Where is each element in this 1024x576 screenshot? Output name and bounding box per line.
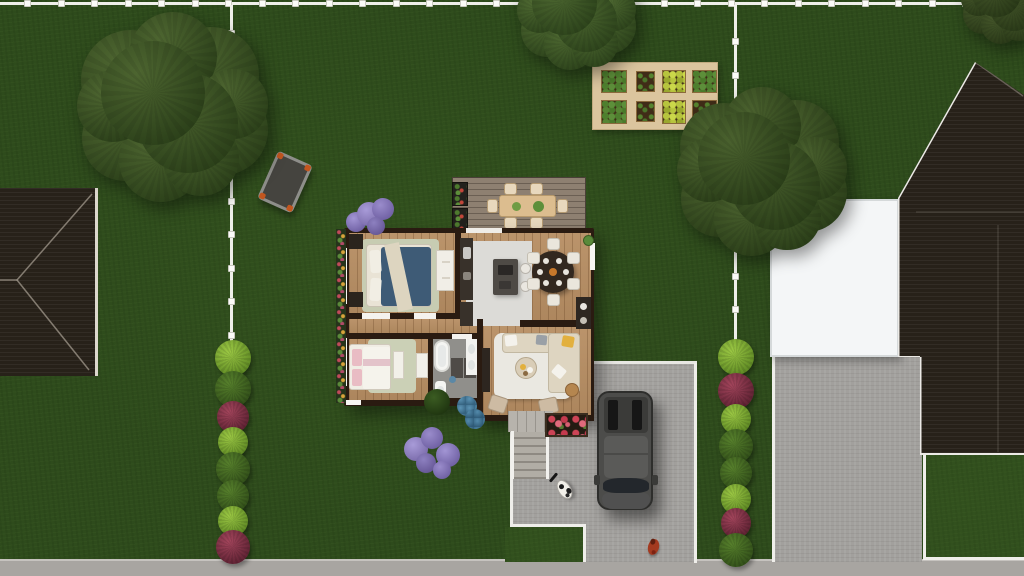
left-neighbor-roof[interactable] [0,188,98,376]
patio-chair[interactable] [504,183,517,195]
raised-bed[interactable] [636,71,655,92]
trampoline-corner [304,164,312,172]
scene-top-down-floor-plan [0,0,1024,576]
fence-post [694,0,701,7]
fence-post [732,306,739,313]
fence-post [732,273,739,280]
bath-mat[interactable] [451,358,463,378]
chicken-head [651,550,656,555]
fence-post [158,0,165,7]
neighbor-lawn-left-edge [923,455,926,559]
fence-post [493,0,500,7]
duvet [363,347,390,389]
lamp [580,317,587,324]
kitchen-sink [463,247,471,259]
fence-post [24,0,31,7]
vase [580,303,587,310]
fence-post [259,0,266,7]
living-shelf[interactable] [482,348,490,392]
deck-planter-top[interactable] [452,182,468,206]
hedge-bush[interactable] [718,339,754,375]
side-table[interactable] [565,383,579,397]
fern-plant[interactable] [424,389,450,415]
fence-post [228,231,235,238]
dresser-handle [442,261,450,263]
central-driveway-top-edge [592,361,697,364]
counter-item [463,272,471,280]
fence-post [828,0,835,7]
dining-chair[interactable] [527,278,540,290]
boundary-fence-top-rail [0,2,1024,5]
fence-post [661,0,668,7]
fence-post [326,0,333,7]
duvet-stripe [363,359,390,366]
truck-bed-rail [608,400,618,430]
door-master [362,313,390,319]
table-plant [533,201,544,212]
notch-edge-horizontal [510,524,586,527]
kitchen-tall-unit[interactable] [460,302,473,326]
entry-stairs[interactable] [514,432,548,479]
patio-table[interactable] [499,195,556,217]
side-mirror [652,475,658,485]
bed-bench[interactable] [393,351,404,379]
table-plant [512,202,521,211]
right-driveway-left-edge [772,357,775,562]
cab-roof [604,436,648,478]
hydrangea-blue[interactable] [465,409,485,429]
hedge-bush[interactable] [719,533,753,567]
patio-chair[interactable] [557,199,568,213]
bathtub[interactable] [434,340,450,372]
place-setting [543,258,549,264]
dining-chair[interactable] [527,252,540,264]
truck-bed-rail [632,400,642,430]
raised-bed[interactable] [601,100,627,124]
fence-post [929,0,936,7]
patio-chair[interactable] [530,183,543,195]
tree-foliage-lobe [698,112,791,205]
fence-post [895,0,902,7]
entry-flowerbed[interactable] [545,413,588,437]
tree-foliage-lobe [101,41,205,145]
stair-rail [546,431,549,479]
kitchen-island[interactable] [493,259,518,295]
place-setting [556,258,562,264]
fence-post [460,0,467,7]
trampoline-corner [276,152,284,160]
roof-seam [604,453,648,455]
windshield [603,478,649,493]
fence-post [393,0,400,7]
fence-post [192,0,199,7]
nightstand[interactable] [349,234,363,249]
patio-chair[interactable] [487,199,498,213]
driveway-grass-notch [505,527,584,562]
bath-vanity[interactable] [466,339,477,375]
window-bed2-bottom [346,400,361,405]
bar-stool[interactable] [520,263,531,274]
table-decor [523,371,528,376]
island-sink [499,281,511,289]
place-setting [563,269,569,275]
kids-dresser[interactable] [416,353,428,378]
fence-post [228,265,235,272]
master-bed[interactable] [366,244,432,307]
kids-bed[interactable] [349,344,391,390]
hood [602,493,650,509]
hedge-bush[interactable] [216,530,250,564]
master-dresser[interactable] [436,250,454,291]
nightstand[interactable] [349,292,363,307]
sofa-pillow[interactable] [536,335,548,346]
fence-post [761,0,768,7]
dining-chair[interactable] [547,294,560,306]
tree-topcenter[interactable] [515,0,639,74]
bed-pillow [369,278,382,302]
chicken-tail [650,538,656,545]
stair-rail [511,431,514,479]
table-decor [520,364,526,370]
bed-pillow [369,250,382,274]
place-setting [556,280,562,286]
center-bowl [549,268,557,276]
tree-right[interactable] [673,83,851,261]
fence-post [795,0,802,7]
fence-post [862,0,869,7]
fence-post [359,0,366,7]
sofa-pillow[interactable] [561,335,575,348]
dining-chair[interactable] [567,278,580,290]
place-setting [543,280,549,286]
fence-post [228,298,235,305]
pink-pillow [352,369,362,386]
dining-chair[interactable] [547,238,560,250]
lilac-bush[interactable] [433,461,451,479]
raised-bed[interactable] [636,101,655,122]
pink-pillow [352,349,362,366]
fence-post [228,332,235,339]
fence-post [58,0,65,7]
central-driveway-right-edge [694,363,697,563]
roof-ridge-line [17,280,89,370]
tree-large-topleft[interactable] [73,8,273,208]
cooktop [498,265,513,275]
sink-basin [468,344,475,354]
fence-post [125,0,132,7]
kitchen-counter[interactable] [460,238,473,300]
fence-post [426,0,433,7]
neighbor-lawn-bottom-edge [923,557,1024,560]
place-setting [537,269,543,275]
neighbor-lawn-patch [925,455,1024,559]
left-roof-ridges [0,188,98,376]
door-hall [414,313,436,319]
road-strip [0,561,1024,576]
right-driveway [774,357,922,562]
pickup-truck[interactable] [597,391,653,510]
trampoline-corner [286,204,294,212]
dining-plant[interactable] [583,235,594,246]
tree-topright-corner[interactable] [959,0,1024,47]
house-flower-border [336,229,346,403]
sink-basin [468,360,475,370]
fence-post [91,0,98,7]
dining-chair[interactable] [567,252,580,264]
hallway-floor [349,319,477,334]
coffee-table[interactable] [515,357,537,379]
tub-basin [438,345,446,367]
dining-sideboard[interactable] [576,297,591,329]
dresser-handle [442,277,450,279]
deck-door [466,228,502,233]
fence-post [732,72,739,79]
notch-edge-vertical [583,525,586,562]
bath-accessory[interactable] [449,376,456,383]
lilac-bush[interactable] [367,217,385,235]
sofa-pillow[interactable] [504,334,517,346]
side-mirror [594,475,600,485]
fence-post [292,0,299,7]
fence-post [732,38,739,45]
dog-spot [558,483,565,490]
window-dining-right [590,243,595,270]
